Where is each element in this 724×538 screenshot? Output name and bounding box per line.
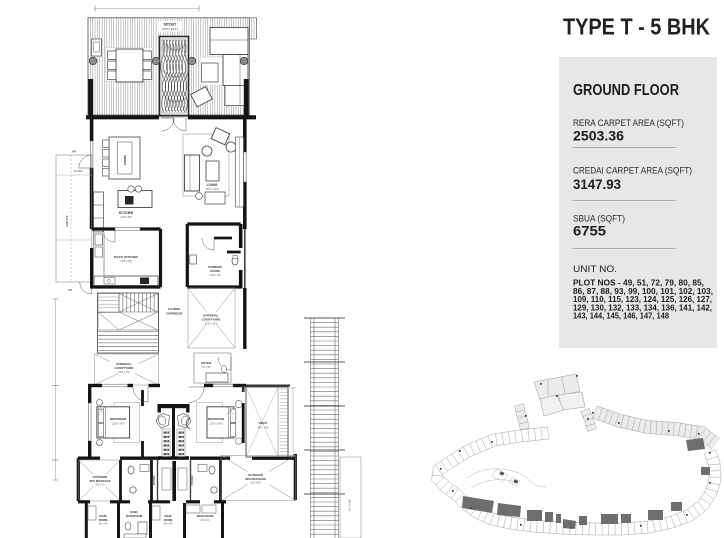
svg-text:BACK KITCHEN: BACK KITCHEN: [114, 255, 138, 259]
svg-text:GROUND FLOOR: GROUND FLOOR: [573, 82, 679, 99]
svg-text:DINING: DINING: [123, 154, 127, 165]
svg-text:9′0 x 14′0: 9′0 x 14′0: [258, 426, 269, 430]
svg-text:8′0 x 6′0: 8′0 x 6′0: [99, 522, 108, 525]
svg-text:7′6 x 5′1: 7′6 x 5′1: [201, 365, 211, 369]
svg-text:FOYER: FOYER: [201, 361, 212, 365]
svg-text:SBUA (SQFT): SBUA (SQFT): [573, 214, 625, 224]
svg-text:CORRIDOR: CORRIDOR: [166, 312, 183, 316]
svg-text:UP: UP: [72, 150, 76, 154]
svg-text:RERA CARPET AREA (SQFT): RERA CARPET AREA (SQFT): [573, 118, 684, 128]
svg-text:12′0 x 8′0: 12′0 x 8′0: [250, 481, 261, 484]
svg-text:UTILITY: UTILITY: [65, 215, 69, 226]
svg-text:9′6 x 7′0: 9′6 x 7′0: [95, 483, 105, 486]
svg-text:UP: UP: [68, 288, 72, 292]
svg-text:60 COMP: 60 COMP: [348, 499, 352, 511]
svg-text:22′0 x 13′6: 22′0 x 13′6: [206, 187, 219, 191]
svg-text:2503.36: 2503.36: [573, 129, 624, 144]
svg-text:8′0 x 6′0: 8′0 x 6′0: [201, 519, 210, 522]
svg-text:ROOM: ROOM: [210, 269, 220, 273]
svg-text:COURTYARD: COURTYARD: [202, 318, 222, 322]
svg-text:12′0 x 8′0: 12′0 x 8′0: [120, 215, 132, 219]
svg-text:ROOM: ROOM: [99, 518, 108, 522]
svg-text:TYPE T - 5 BHK: TYPE T - 5 BHK: [563, 14, 710, 40]
svg-text:SPA MASSAGE: SPA MASSAGE: [245, 477, 266, 481]
svg-text:BEDROOM: BEDROOM: [110, 417, 127, 421]
svg-text:DECK: DECK: [259, 421, 269, 425]
svg-text:8′0 x 6′0: 8′0 x 6′0: [164, 522, 173, 525]
svg-text:20′6 x 19′11: 20′6 x 19′11: [162, 27, 178, 31]
svg-text:COURTYARD: COURTYARD: [115, 366, 135, 370]
svg-text:SPA MASSAGE: SPA MASSAGE: [89, 479, 110, 483]
svg-text:KITCHEN: KITCHEN: [119, 211, 134, 215]
svg-text:ROOM: ROOM: [164, 518, 173, 522]
svg-text:BATHROOM: BATHROOM: [126, 514, 143, 518]
svg-text:4′6 WIDE: 4′6 WIDE: [168, 307, 181, 311]
svg-text:MAID ROOM: MAID ROOM: [197, 514, 214, 518]
svg-text:3147.93: 3147.93: [573, 177, 621, 192]
svg-text:CREDAI CARPET AREA (SQFT): CREDAI CARPET AREA (SQFT): [573, 166, 692, 176]
svg-text:SLOPE: SLOPE: [74, 169, 83, 173]
svg-text:6755: 6755: [573, 224, 607, 239]
svg-text:10′0 x 4′6: 10′0 x 4′6: [210, 273, 221, 277]
svg-text:LIVING: LIVING: [207, 183, 218, 187]
svg-text:UNIT NO.: UNIT NO.: [573, 264, 617, 275]
svg-text:BEDROOM: BEDROOM: [208, 417, 225, 421]
svg-text:143, 144, 145, 146, 147, 148: 143, 144, 145, 146, 147, 148: [573, 312, 670, 321]
svg-text:10′0 x 12′2: 10′0 x 12′2: [205, 322, 218, 326]
svg-text:POCKET: POCKET: [191, 474, 194, 485]
svg-text:POCKET: POCKET: [153, 474, 156, 485]
svg-text:10′0 x 9′6: 10′0 x 9′6: [120, 259, 132, 263]
svg-text:12′0 x 14′0: 12′0 x 14′0: [210, 422, 223, 426]
svg-text:10′0 x 5′0: 10′0 x 5′0: [119, 370, 130, 374]
svg-text:SITOUT: SITOUT: [164, 23, 178, 27]
svg-text:12′0 x 14′0: 12′0 x 14′0: [112, 422, 125, 426]
